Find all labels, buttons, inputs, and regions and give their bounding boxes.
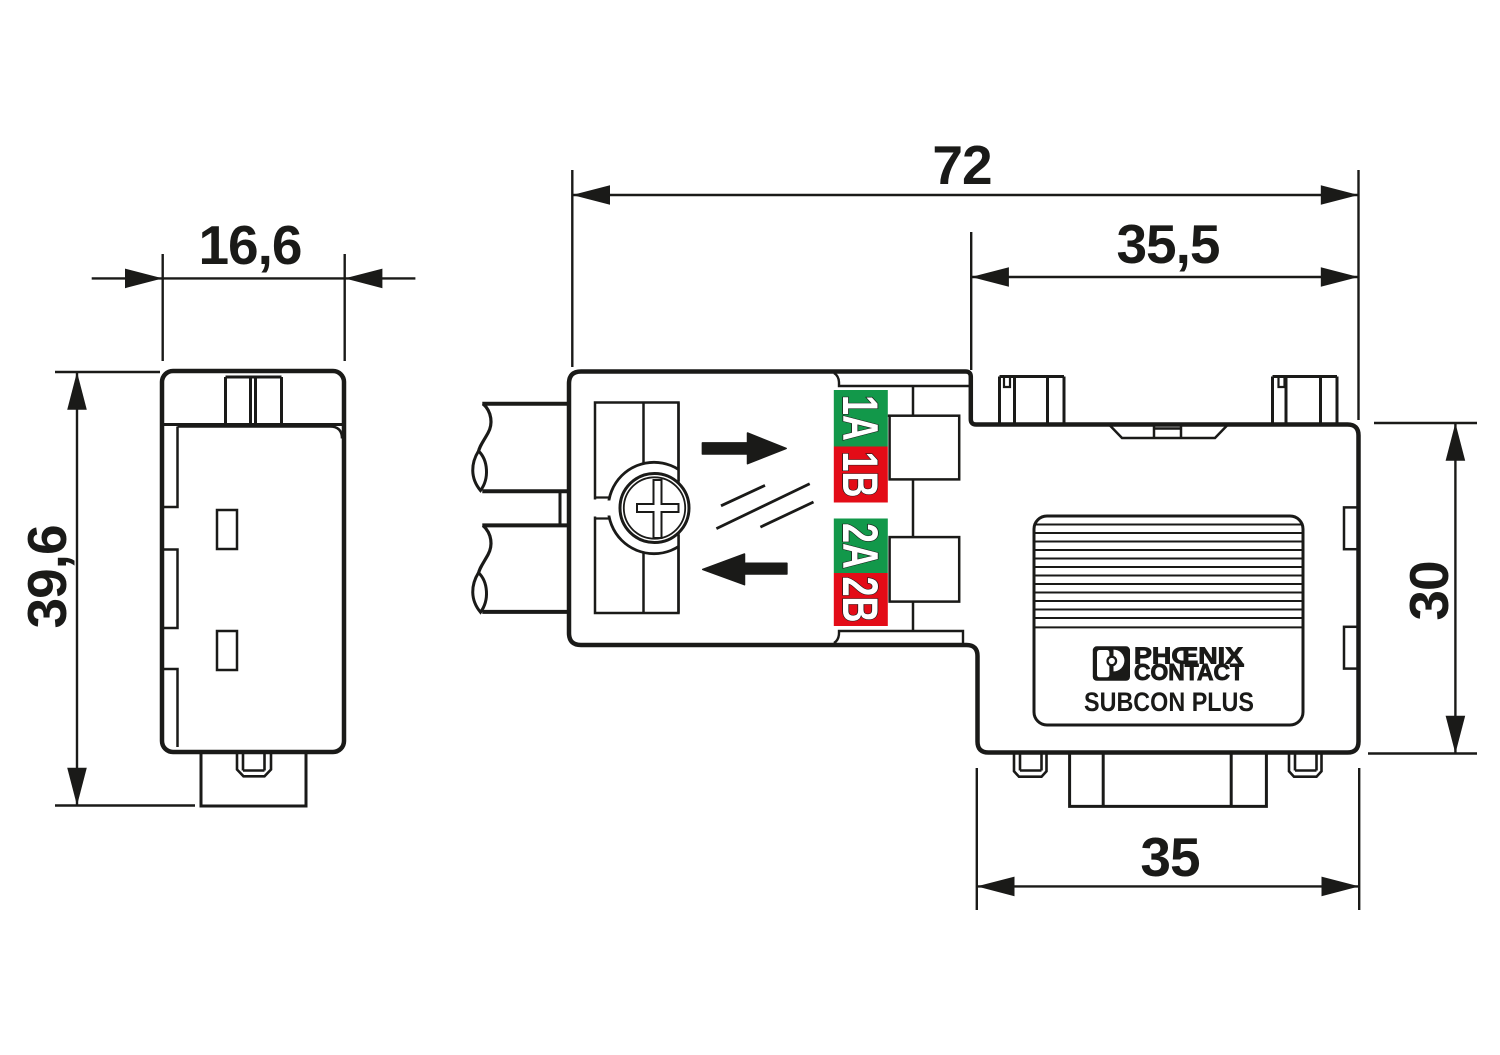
svg-text:35,5: 35,5: [1116, 213, 1219, 275]
svg-text:72: 72: [932, 134, 991, 196]
svg-text:30: 30: [1398, 561, 1460, 620]
svg-text:1A: 1A: [832, 395, 887, 441]
svg-text:16,6: 16,6: [198, 214, 301, 276]
svg-text:1B: 1B: [832, 451, 887, 497]
svg-text:35: 35: [1140, 826, 1200, 888]
svg-text:2B: 2B: [832, 576, 887, 622]
svg-text:CONTACT: CONTACT: [1134, 659, 1245, 685]
svg-text:SUBCON PLUS: SUBCON PLUS: [1084, 687, 1254, 717]
svg-text:39,6: 39,6: [16, 525, 78, 628]
svg-text:2A: 2A: [832, 523, 887, 569]
